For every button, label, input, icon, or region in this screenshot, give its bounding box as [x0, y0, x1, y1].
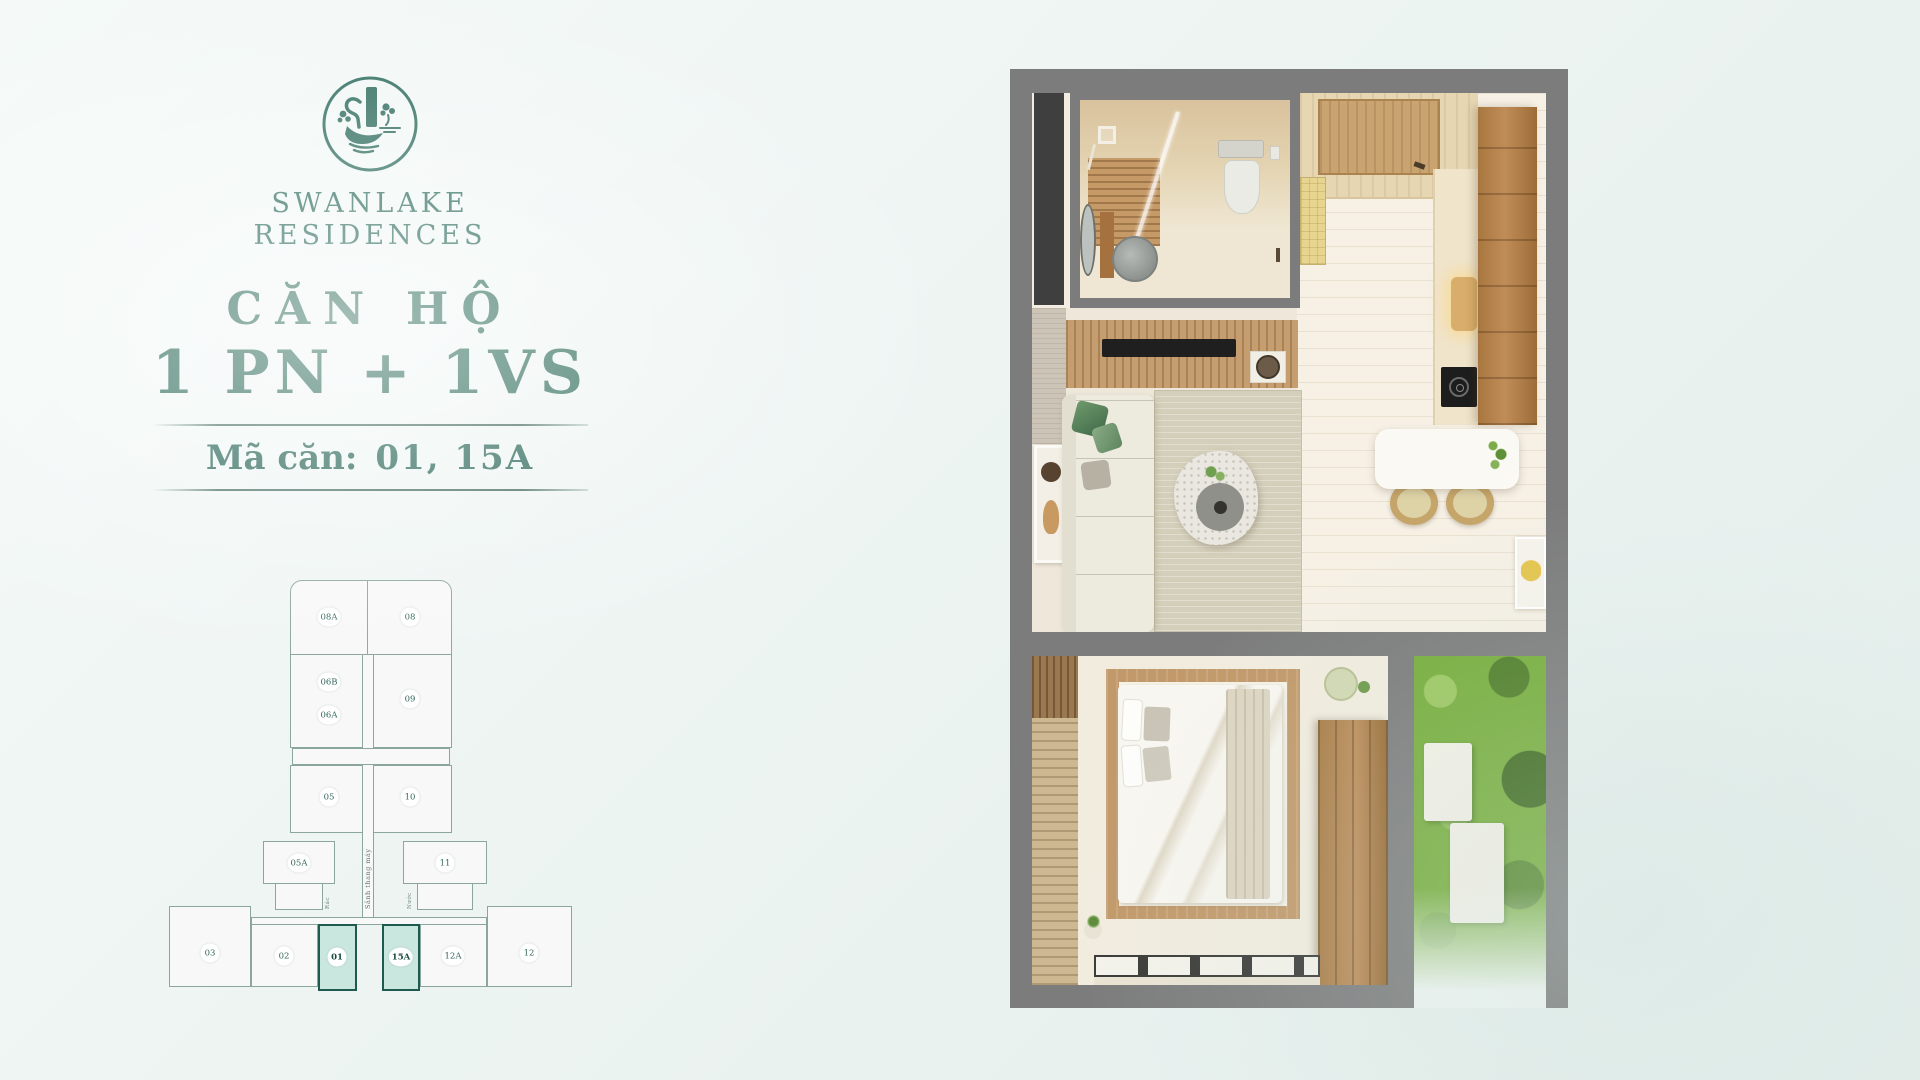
pillow — [1121, 744, 1144, 787]
bathroom-door-handle — [1276, 248, 1280, 262]
wall-left — [1010, 69, 1032, 1008]
wall-middle-divider — [1032, 632, 1546, 656]
wardrobe — [1318, 720, 1388, 985]
unit-label-10: 10 — [401, 788, 420, 807]
round-mirror — [1080, 204, 1096, 276]
burner-icon — [1449, 377, 1469, 397]
toilet-paper — [1270, 146, 1280, 160]
page-title: CĂN HỘ — [70, 282, 670, 335]
utility-label-right: Nước — [407, 885, 413, 909]
unit-label-11: 11 — [436, 854, 455, 873]
table-plant — [1487, 439, 1507, 473]
side-table — [1250, 351, 1286, 383]
stone-basin — [1112, 236, 1158, 282]
unit-label-02: 02 — [275, 947, 294, 966]
unit-code-line: Mã căn:01, 15A — [70, 438, 670, 478]
wall-garden-partition — [1388, 656, 1414, 985]
unit-label-06A: 06A — [318, 706, 341, 725]
building-keyplan: 08A 08 06B 06A 09 05 10 05A 11 03 02 01 … — [165, 575, 577, 1000]
keyplan-corridor-cross — [292, 748, 450, 765]
wall-right — [1546, 69, 1568, 1008]
table-pot — [1214, 501, 1227, 514]
shower-head — [1098, 126, 1116, 144]
keyplan-unit-05A-foot — [275, 883, 323, 910]
brand-line-2: RESIDENCES — [70, 220, 670, 252]
bathroom-interior — [1080, 100, 1290, 298]
bedroom-slat-header — [1032, 656, 1078, 718]
unit-label-06B: 06B — [317, 673, 340, 692]
unit-label-05A: 05A — [288, 854, 311, 873]
dining-table — [1375, 429, 1519, 489]
keyplan-unit-11-foot — [417, 883, 473, 910]
brand-line-1: SWANLAKE — [70, 188, 670, 220]
coffee-table — [1174, 451, 1258, 545]
pillow — [1121, 699, 1143, 742]
divider-line-bottom — [152, 489, 588, 491]
unit-label-08A: 08A — [318, 608, 341, 627]
cooktop — [1441, 367, 1477, 407]
unit-type-title: 1 PN + 1VS — [70, 338, 670, 408]
brand-name: SWANLAKE RESIDENCES — [70, 188, 670, 253]
wall-bedroom-bottom — [1010, 985, 1414, 1008]
unit-label-08: 08 — [401, 608, 420, 627]
leaning-artwork — [1515, 537, 1546, 609]
swanlake-logo-icon — [320, 74, 420, 174]
unit-label-12A: 12A — [442, 947, 465, 966]
table-greenery — [1202, 463, 1228, 485]
toilet — [1224, 160, 1260, 214]
bedroom-stool — [1324, 667, 1358, 701]
cutting-board — [1451, 277, 1477, 331]
living-accent-wall — [1032, 308, 1066, 444]
lift-lobby-label: Sảnh thang máy — [364, 843, 372, 909]
unit-label-09: 09 — [401, 690, 420, 709]
cushion — [1143, 707, 1170, 742]
garden-balcony — [1414, 656, 1546, 1008]
planter-box — [1424, 743, 1472, 821]
apartment-floorplan — [1010, 69, 1568, 1008]
unit-label-03: 03 — [201, 944, 220, 963]
toilet-tank — [1218, 140, 1264, 158]
bathroom — [1070, 90, 1300, 308]
divider-line-top — [152, 424, 588, 426]
entry-bench — [1300, 177, 1326, 265]
tv — [1102, 339, 1236, 357]
kitchen-cabinets — [1478, 107, 1537, 425]
bed-throw — [1226, 689, 1270, 899]
utility-label-left: Rác — [325, 885, 331, 909]
garden-fade — [1414, 888, 1546, 1008]
utility-shaft — [1034, 93, 1064, 305]
vanity-shelf — [1100, 212, 1114, 278]
nook-plant — [1358, 681, 1370, 693]
window-sill — [1094, 977, 1320, 985]
unit-label-12: 12 — [520, 944, 539, 963]
cushion — [1142, 746, 1171, 783]
unit-code-label: Mã căn: — [206, 438, 358, 478]
brochure-page: SWANLAKE RESIDENCES CĂN HỘ 1 PN + 1VS Mã… — [0, 0, 1920, 1080]
unit-label-01: 01 — [328, 948, 347, 967]
round-tray — [1256, 355, 1280, 379]
floor-plant — [1084, 921, 1102, 939]
keyplan-unit-06 — [290, 654, 368, 748]
unit-code-value: 01, 15A — [375, 438, 534, 478]
bedroom-window — [1094, 955, 1320, 977]
unit-label-05: 05 — [320, 788, 339, 807]
gray-pillow — [1080, 459, 1112, 491]
